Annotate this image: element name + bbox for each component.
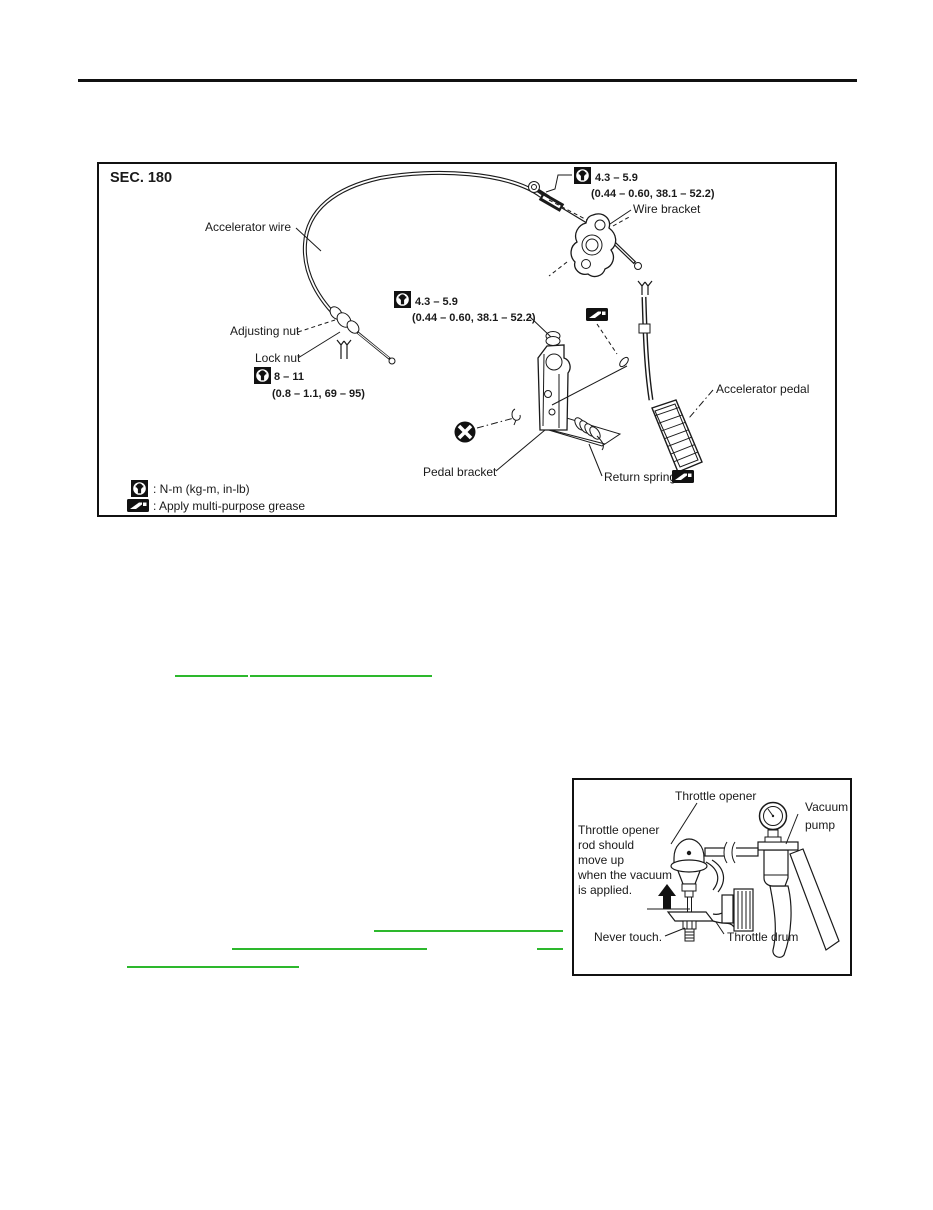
note-line: move up (578, 853, 624, 867)
torque-icon (131, 480, 148, 497)
note-line: Throttle opener (578, 823, 659, 837)
figure-throttle-opener-check: Throttle opener Vacuum pump Throttle ope… (572, 778, 852, 976)
accelerator-pedal-drawing (638, 281, 702, 472)
note-text-block: Throttle opener rod should move up when … (577, 823, 672, 897)
figure-accelerator-control: SEC. 180 (97, 162, 837, 517)
figure1-border (98, 163, 836, 516)
throttle-drum-drawing (713, 889, 753, 931)
up-arrow-icon (658, 884, 676, 909)
link-underline[interactable] (232, 948, 427, 950)
torque-lock-nut-nm: 8 – 11 (274, 371, 304, 383)
label-throttle-opener: Throttle opener (675, 789, 756, 803)
grease-icon (127, 499, 149, 512)
pedal-bracket-drawing (512, 332, 630, 451)
link-underline[interactable] (250, 675, 432, 677)
note-line: when the vacuum (577, 868, 672, 882)
label-lock-nut: Lock nut (255, 351, 301, 365)
vacuum-hose-drawing (705, 842, 758, 863)
torque-wire-bracket-nm: 4.3 – 5.9 (595, 172, 638, 184)
grease-icon (672, 470, 694, 483)
link-underline[interactable] (374, 930, 563, 932)
link-underline[interactable] (537, 948, 563, 950)
torque-icon (394, 291, 411, 308)
torque-pedal-alt: (0.44 – 0.60, 38.1 – 52.2) (412, 312, 536, 324)
torque-pedal-nm: 4.3 – 5.9 (415, 296, 458, 308)
header-rule (78, 79, 857, 82)
note-line: is applied. (578, 883, 632, 897)
label-adjusting-nut: Adjusting nut (230, 324, 300, 338)
adjusting-nut-drawing (328, 304, 395, 364)
legend-grease-text: : Apply multi-purpose grease (153, 499, 305, 513)
legend-torque-text: : N-m (kg-m, in-lb) (153, 482, 250, 496)
link-underline[interactable] (127, 966, 299, 968)
label-return-spring: Return spring (604, 470, 676, 484)
label-never-touch: Never touch. (594, 930, 662, 944)
label-vacuum-pump-line2: pump (805, 818, 835, 832)
label-accelerator-pedal: Accelerator pedal (716, 382, 809, 396)
label-accelerator-wire: Accelerator wire (205, 220, 291, 234)
section-label: SEC. 180 (110, 170, 172, 186)
link-underline[interactable] (175, 675, 248, 677)
label-throttle-drum: Throttle drum (727, 930, 798, 944)
label-pedal-bracket: Pedal bracket (423, 465, 497, 479)
grease-icon (586, 308, 608, 321)
crossed-circle-icon (455, 418, 515, 443)
torque-wire-bracket-alt: (0.44 – 0.60, 38.1 – 52.2) (591, 188, 715, 200)
note-line: rod should (578, 838, 634, 852)
torque-icon (254, 367, 271, 384)
manual-page: SEC. 180 (0, 0, 933, 1210)
torque-lock-nut-alt: (0.8 – 1.1, 69 – 95) (272, 388, 365, 400)
label-wire-bracket: Wire bracket (633, 202, 701, 216)
torque-icon (574, 167, 591, 184)
label-vacuum-pump-line1: Vacuum (805, 800, 848, 814)
figure1-legend: : N-m (kg-m, in-lb) : Apply multi-purpos… (127, 480, 305, 513)
